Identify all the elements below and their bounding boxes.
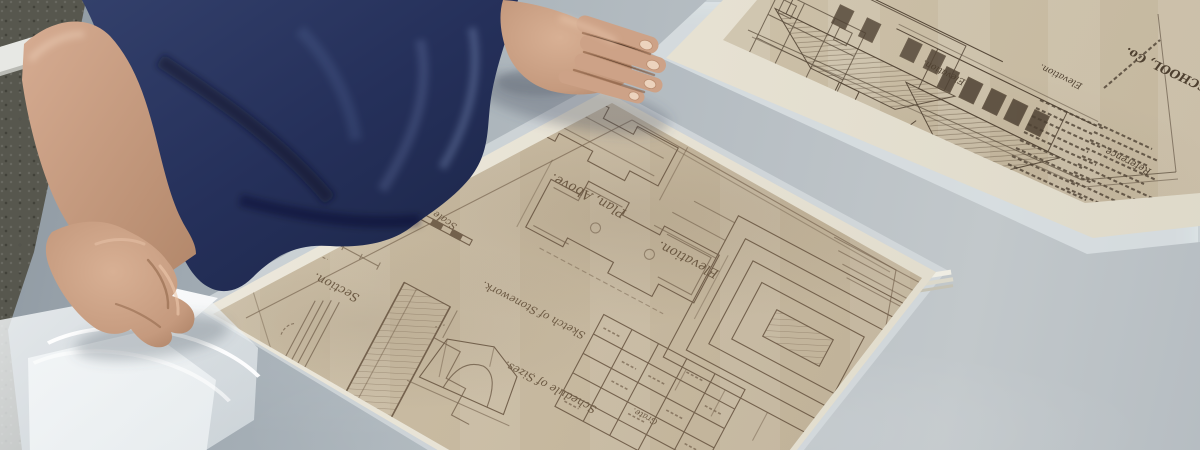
scene-root: Elevation. Elevation. Reference. SCHOOL,… — [0, 0, 1200, 450]
person-figure — [0, 0, 1200, 450]
